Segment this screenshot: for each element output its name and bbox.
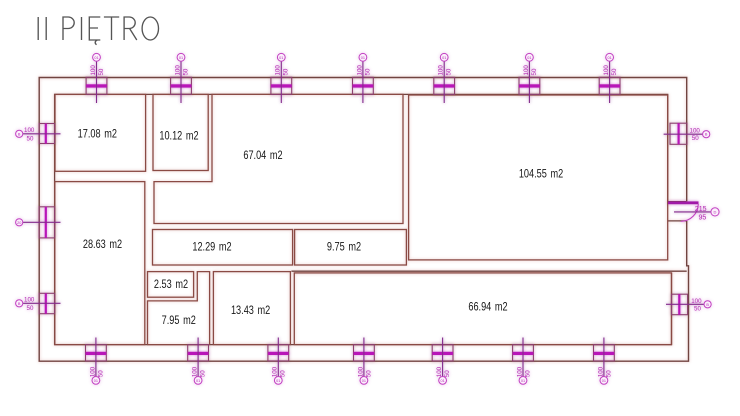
- svg-text:01: 01: [279, 56, 283, 60]
- svg-text:12.29 m2: 12.29 m2: [192, 241, 231, 253]
- svg-text:50: 50: [611, 68, 618, 75]
- svg-text:50: 50: [365, 370, 372, 377]
- svg-text:50: 50: [364, 68, 371, 75]
- svg-text:100: 100: [597, 366, 604, 377]
- svg-text:50: 50: [531, 68, 538, 75]
- svg-text:01: 01: [442, 56, 446, 60]
- svg-text:B: B: [18, 302, 21, 306]
- svg-text:95: 95: [699, 215, 707, 222]
- svg-text:2.53 m2: 2.53 m2: [154, 279, 188, 291]
- svg-text:100: 100: [192, 366, 199, 377]
- svg-text:17.08 m2: 17.08 m2: [78, 128, 117, 140]
- svg-text:50: 50: [27, 305, 34, 312]
- svg-text:100: 100: [24, 297, 35, 304]
- svg-text:100: 100: [516, 366, 523, 377]
- svg-text:50: 50: [524, 370, 531, 377]
- svg-text:67.04 m2: 67.04 m2: [243, 150, 282, 162]
- svg-text:20: 20: [17, 221, 21, 225]
- svg-text:50: 50: [694, 306, 701, 313]
- svg-text:104.55 m2: 104.55 m2: [519, 169, 564, 181]
- svg-text:50: 50: [605, 370, 612, 377]
- svg-text:50: 50: [444, 370, 451, 377]
- svg-text:01: 01: [602, 379, 606, 383]
- svg-text:100: 100: [523, 65, 530, 76]
- svg-text:50: 50: [98, 68, 105, 75]
- svg-text:01: 01: [179, 56, 183, 60]
- svg-text:7.95 m2: 7.95 m2: [162, 315, 196, 327]
- svg-text:50: 50: [280, 370, 287, 377]
- svg-text:100: 100: [24, 127, 35, 134]
- svg-text:01: 01: [94, 379, 98, 383]
- svg-text:100: 100: [89, 366, 96, 377]
- svg-text:50: 50: [446, 68, 453, 75]
- svg-text:10.12 m2: 10.12 m2: [159, 131, 198, 143]
- svg-text:100: 100: [438, 65, 445, 76]
- svg-text:50: 50: [283, 68, 290, 75]
- svg-text:215: 215: [695, 206, 707, 213]
- svg-text:01: 01: [362, 379, 366, 383]
- svg-text:100: 100: [691, 298, 702, 305]
- svg-text:50: 50: [97, 370, 104, 377]
- svg-text:100: 100: [90, 65, 97, 76]
- svg-text:01: 01: [94, 56, 98, 60]
- svg-text:9.75 m2: 9.75 m2: [327, 241, 361, 253]
- svg-text:50: 50: [200, 370, 207, 377]
- svg-text:100: 100: [174, 65, 181, 76]
- svg-text:50: 50: [182, 68, 189, 75]
- svg-text:01: 01: [521, 379, 525, 383]
- svg-text:01: 01: [527, 56, 531, 60]
- svg-text:50: 50: [27, 135, 34, 142]
- svg-text:13.43 m2: 13.43 m2: [231, 305, 270, 317]
- svg-text:D: D: [714, 210, 717, 215]
- svg-text:100: 100: [272, 366, 279, 377]
- svg-text:01: 01: [196, 379, 200, 383]
- svg-text:28.63 m2: 28.63 m2: [83, 239, 122, 251]
- svg-text:01: 01: [276, 379, 280, 383]
- svg-text:100: 100: [690, 128, 701, 135]
- svg-text:B: B: [705, 133, 708, 137]
- svg-text:01: 01: [440, 379, 444, 383]
- svg-text:B: B: [18, 132, 21, 136]
- svg-text:100: 100: [356, 65, 363, 76]
- svg-text:66.94 m2: 66.94 m2: [468, 302, 507, 314]
- svg-text:01: 01: [607, 56, 611, 60]
- svg-text:01: 01: [361, 56, 365, 60]
- svg-text:100: 100: [603, 65, 610, 76]
- svg-text:100: 100: [357, 366, 364, 377]
- svg-text:100: 100: [275, 65, 282, 76]
- svg-text:100: 100: [436, 366, 443, 377]
- svg-text:50: 50: [692, 135, 699, 142]
